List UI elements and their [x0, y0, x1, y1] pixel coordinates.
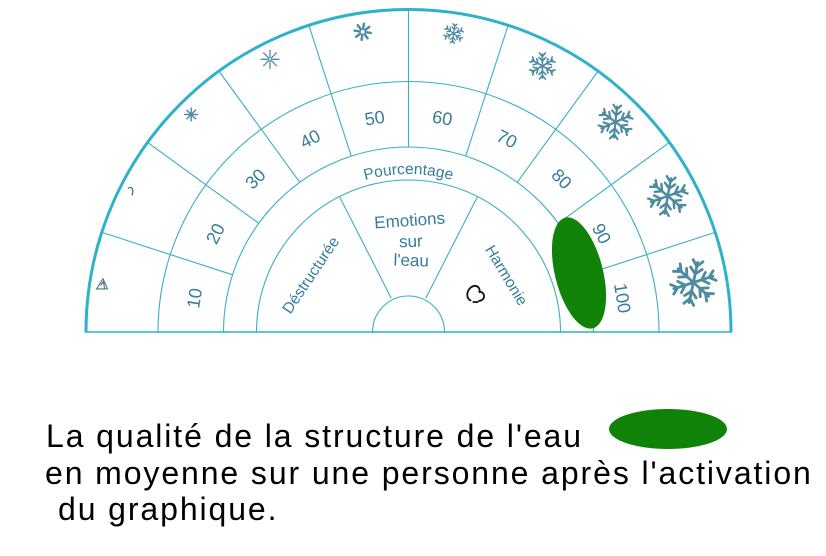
svg-text:80: 80 — [547, 165, 575, 193]
svg-text:70: 70 — [493, 126, 520, 153]
svg-text:Emotions: Emotions — [374, 209, 446, 233]
svg-text:La qualité de la structure de: La qualité de la structure de l'eau — [46, 418, 583, 454]
svg-text:30: 30 — [241, 165, 269, 193]
svg-text:20: 20 — [202, 220, 229, 247]
svg-text:50: 50 — [363, 107, 386, 130]
svg-text:l'eau: l'eau — [393, 250, 429, 270]
svg-text:en moyenne sur une personne ap: en moyenne sur une personne après l'acti… — [45, 455, 813, 491]
svg-text:60: 60 — [431, 107, 454, 130]
svg-text:sur: sur — [399, 232, 424, 252]
svg-text:40: 40 — [297, 126, 324, 153]
svg-text:10: 10 — [183, 287, 206, 310]
svg-text:Déstructurée: Déstructurée — [279, 234, 343, 317]
svg-text:du graphique.: du graphique. — [58, 491, 278, 527]
svg-text:Harmonie: Harmonie — [481, 243, 530, 309]
svg-text:100: 100 — [610, 282, 634, 315]
